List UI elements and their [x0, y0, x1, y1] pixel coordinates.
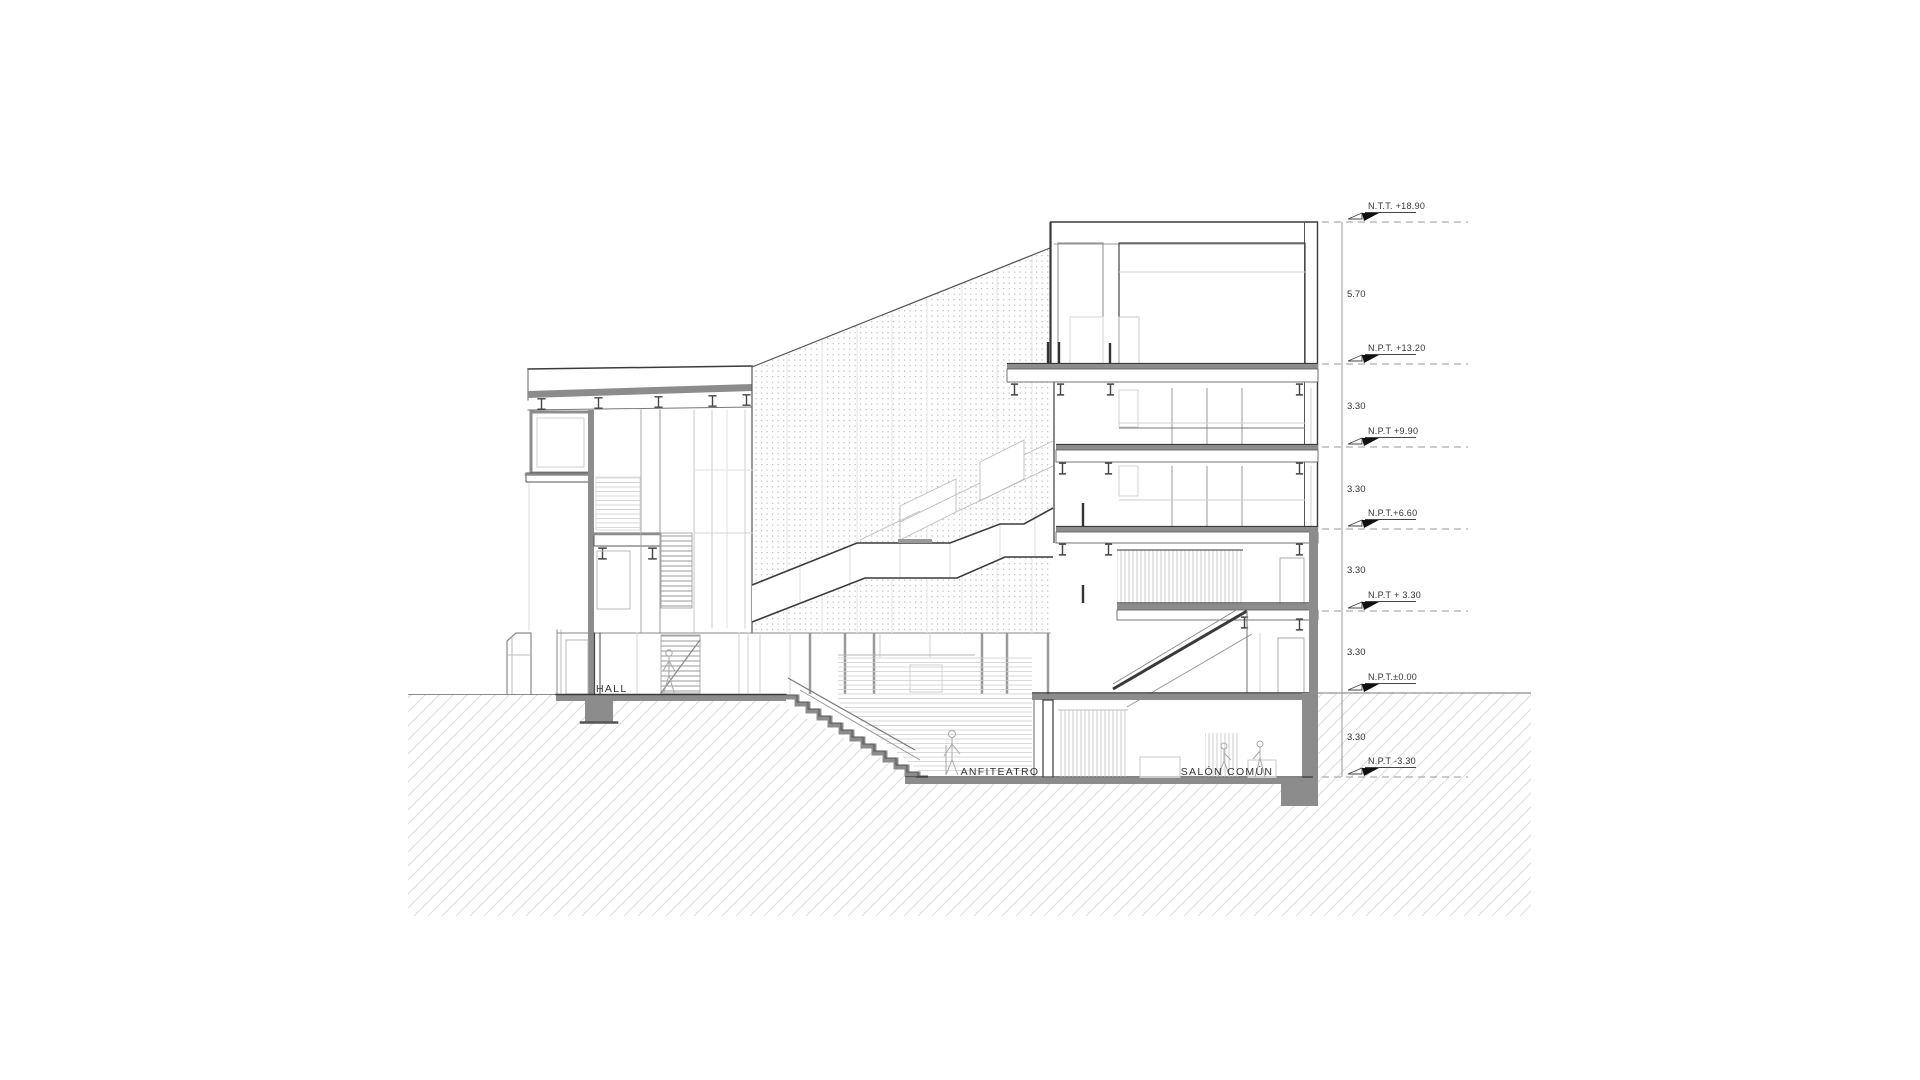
entry-kiosk [507, 633, 531, 694]
left-ceiling-line [528, 407, 752, 410]
level-label: N.P.T + 3.30 [1368, 590, 1421, 600]
basement-slab [905, 778, 1313, 784]
main-stair-flight [1113, 606, 1252, 707]
kiosk-outline [507, 633, 531, 694]
ground-slab-right [1032, 694, 1318, 700]
architectural-section-sheet: N.T.T. +18.90 N.P.T. +13.20 N.P.T +9.90 [0, 0, 1920, 1080]
storey-dimension: 3.30 [1347, 484, 1366, 495]
level-label: N.P.T. +13.20 [1368, 343, 1426, 353]
roof-ibeam [595, 398, 602, 408]
salon-column [1043, 700, 1053, 777]
level-label: N.T.T. +18.90 [1368, 201, 1425, 211]
level-flag-icon [1348, 684, 1416, 693]
ground-slab-left [556, 695, 786, 701]
left-main-wall [588, 410, 594, 695]
hall-door-leaf [566, 640, 588, 694]
level-flag-icon [1348, 355, 1416, 364]
room-label-hall: HALL [596, 683, 627, 695]
level-label: N.P.T -3.30 [1368, 756, 1416, 766]
level-marker-13-20: N.P.T. +13.20 [1322, 343, 1468, 364]
level-flag-icon [1348, 213, 1416, 222]
room-label-anfiteatro: ANFITEATRO [961, 766, 1040, 778]
level-marker-9-90: N.P.T +9.90 [1322, 426, 1468, 447]
corner-window-bay [531, 412, 590, 473]
foundation-pier [585, 701, 613, 722]
roof-ibeam [538, 399, 545, 409]
level-marker-0-00: N.P.T.±0.00 [1322, 672, 1468, 693]
salon-curtain-panel [1058, 710, 1128, 777]
level-label: N.P.T.+6.60 [1368, 508, 1417, 518]
level-flag-icon [1348, 520, 1416, 529]
right-wall-poche [1281, 530, 1318, 806]
shaft-door [1070, 317, 1103, 365]
level-label: N.P.T +9.90 [1368, 426, 1418, 436]
top-left-shaft [1058, 243, 1103, 365]
section-drawing: N.T.T. +18.90 N.P.T. +13.20 N.P.T +9.90 [0, 0, 1920, 1080]
level-annotations: N.T.T. +18.90 N.P.T. +13.20 N.P.T +9.90 [1322, 201, 1468, 777]
landing-ibeam [649, 548, 656, 559]
bleacher-step-edge [898, 539, 932, 543]
level-flag-icon [1348, 438, 1416, 447]
landing-ibeam [599, 548, 606, 559]
left-roof-parapet [528, 366, 752, 369]
top-room [1119, 243, 1305, 366]
room-label-salon-comun: SALÓN COMÚN [1181, 765, 1273, 778]
roof-ibeam [743, 395, 750, 405]
storey-dimension: 3.30 [1347, 647, 1366, 658]
storey-dimension: 5.70 [1347, 289, 1366, 300]
left-roof-slab [528, 384, 752, 398]
level-marker-3-30: N.P.T + 3.30 [1322, 590, 1468, 611]
level-label: N.P.T.±0.00 [1368, 672, 1417, 682]
mid-stair-flight [661, 533, 692, 608]
window-band-3 [1119, 466, 1311, 526]
floor-6-60 [1056, 503, 1318, 555]
roof-ibeam [655, 397, 662, 407]
storey-dimension: 3.30 [1347, 565, 1366, 576]
ground-door [1278, 638, 1304, 693]
salon-table [1140, 757, 1180, 777]
balcony-posts [1048, 342, 1110, 364]
tall-block [1007, 222, 1318, 806]
storey-dimension: 3.30 [1347, 732, 1366, 743]
level-marker-18-90: N.T.T. +18.90 [1322, 201, 1468, 222]
stair-balustrade-band [1117, 545, 1311, 610]
level-flag-icon [1348, 602, 1416, 611]
window-band-4 [1119, 388, 1311, 444]
corner-window-glass [537, 418, 584, 467]
top-room-door [1119, 317, 1139, 366]
roof-ibeam [709, 396, 716, 406]
atrium [752, 248, 1053, 778]
upper-stair-flight [596, 477, 640, 530]
storey-dimension: 3.30 [1347, 401, 1366, 412]
floor-9-90 [1056, 445, 1318, 474]
level-marker-6-60: N.P.T.+6.60 [1322, 508, 1468, 529]
upper-door-panel [597, 551, 630, 609]
